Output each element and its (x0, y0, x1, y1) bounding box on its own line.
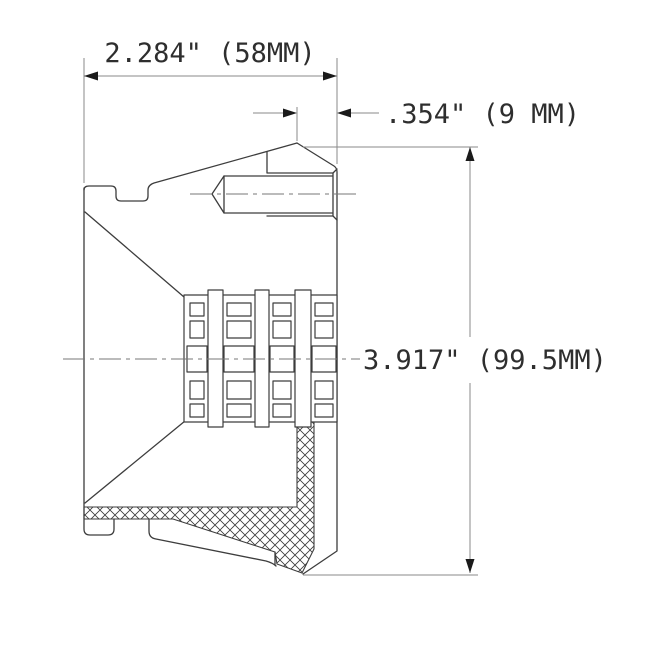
spline-cell (315, 404, 333, 417)
arrowhead-right (337, 109, 351, 118)
spline-cell (273, 404, 291, 417)
spline-cell (190, 404, 204, 417)
spline-cell (227, 321, 251, 338)
spline-cell (227, 381, 251, 399)
bore-funnel-bottom (85, 421, 185, 503)
spline-cell (315, 381, 333, 399)
arrowhead-down (466, 559, 475, 573)
spline-cell (273, 381, 291, 399)
spline-cell (315, 303, 333, 316)
technical-drawing-page: 2.284" (58MM) .354" (9 MM) 3.917" (99.5M… (0, 0, 650, 650)
extension-line (84, 58, 337, 183)
arrowhead-left (283, 109, 297, 118)
section-hatch-region (84, 422, 314, 573)
arrowhead-right (323, 72, 337, 81)
spline-cell (273, 303, 291, 316)
arrowhead-up (466, 147, 475, 161)
top-profile (84, 143, 297, 201)
spline-cell (227, 303, 251, 316)
spline-cell (315, 321, 333, 338)
width-dimension-label: 2.284" (58MM) (104, 38, 315, 69)
dimension-height: 3.917" (99.5MM) (303, 147, 607, 575)
dimension-width: 2.284" (58MM) (84, 38, 337, 183)
spline-cell (190, 321, 204, 338)
dimension-offset: .354" (9 MM) (253, 99, 580, 141)
offset-dimension-label: .354" (9 MM) (385, 99, 580, 130)
bore-funnel-top (85, 212, 184, 297)
spline-cell (190, 381, 204, 399)
arrowhead-left (84, 72, 98, 81)
screw-hole-step (267, 152, 337, 220)
height-dimension-label: 3.917" (99.5MM) (363, 345, 607, 376)
drawing-canvas: 2.284" (58MM) .354" (9 MM) 3.917" (99.5M… (0, 0, 650, 650)
spline-cell (273, 321, 291, 338)
spline-cell (227, 404, 251, 417)
spline-cell (190, 303, 204, 316)
